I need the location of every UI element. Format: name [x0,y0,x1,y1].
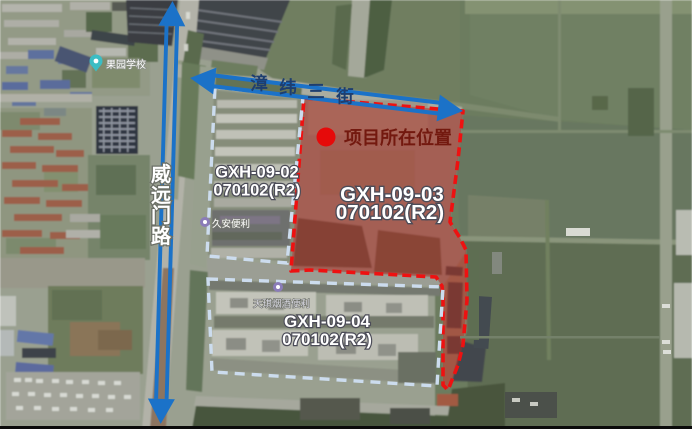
svg-text:项目所在位置: 项目所在位置 [344,127,452,148]
svg-text:三: 三 [307,82,325,102]
svg-text:纬: 纬 [279,78,297,98]
svg-text:果园学校: 果园学校 [106,58,146,71]
svg-text:远: 远 [151,184,171,207]
svg-text:070102(R2): 070102(R2) [282,330,372,349]
svg-text:门: 门 [151,203,171,227]
svg-text:路: 路 [151,224,172,248]
svg-text:久安便利: 久安便利 [212,218,250,230]
svg-text:漳: 漳 [250,74,268,94]
svg-text:威: 威 [151,162,171,186]
svg-text:GXH-09-02: GXH-09-02 [215,164,298,182]
svg-text:街: 街 [335,87,354,107]
svg-text:070102(R2): 070102(R2) [213,182,300,200]
svg-text:070102(R2): 070102(R2) [336,201,444,224]
svg-text:天琪烟酒便利: 天琪烟酒便利 [253,298,310,310]
svg-text:GXH-09-04: GXH-09-04 [284,312,371,331]
